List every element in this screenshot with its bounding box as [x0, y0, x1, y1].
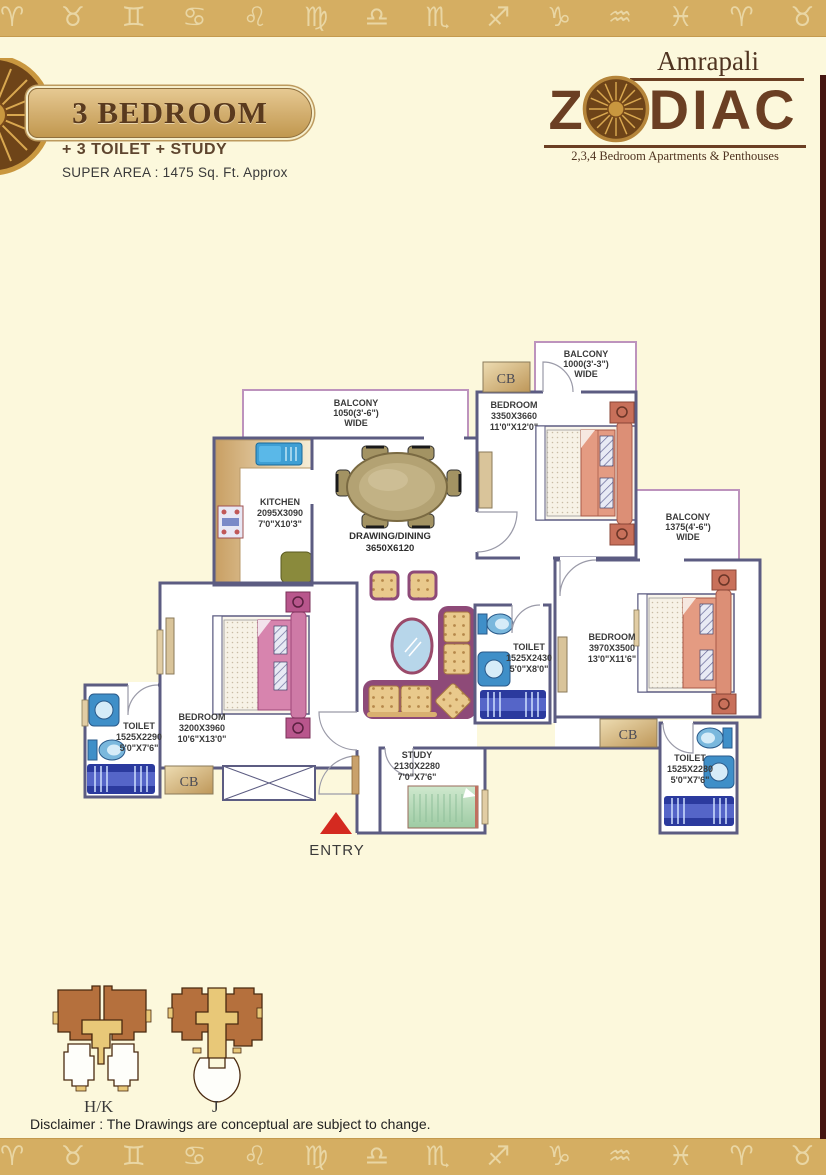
label-kitchen: KITCHEN: [260, 497, 300, 507]
logo-letters-diac: DIAC: [649, 77, 798, 142]
tv-unit: [479, 452, 492, 508]
zodiac-logo: Z DIAC: [540, 72, 806, 146]
svg-text:1525X2430: 1525X2430: [506, 653, 552, 663]
svg-text:10'6"X13'0": 10'6"X13'0": [178, 734, 227, 744]
svg-text:1525X2290: 1525X2290: [116, 732, 162, 742]
zodiac-band-top: ♈ ♉ ♊ ♋ ♌ ♍ ♎ ♏ ♐ ♑ ♒ ♓ ♈ ♉ ♊ ♋ ♌ ♍ ♎ ♏: [0, 0, 826, 37]
label-drawing-dining: DRAWING/DINING: [349, 531, 431, 542]
key-plan: H/K J: [40, 972, 320, 1122]
label-cb-top: CB: [497, 372, 516, 387]
svg-text:7'0"X7'6": 7'0"X7'6": [398, 772, 437, 782]
svg-text:13'0"X11'6": 13'0"X11'6": [588, 654, 636, 664]
brochure-page: ♈ ♉ ♊ ♋ ♌ ♍ ♎ ♏ ♐ ♑ ♒ ♓ ♈ ♉ ♊ ♋ ♌ ♍ ♎ ♏ …: [0, 0, 826, 1175]
unit-title-badge: 3 BEDROOM: [28, 88, 312, 138]
entry-door: [352, 756, 359, 794]
svg-text:1375(4'-6"): 1375(4'-6"): [665, 522, 710, 532]
disclaimer: Disclaimer : The Drawings are conceptual…: [30, 1116, 431, 1132]
tower-hk-icon: [53, 986, 151, 1091]
svg-text:1000(3'-3"): 1000(3'-3"): [563, 359, 608, 369]
svg-text:11'0"X12'0": 11'0"X12'0": [490, 422, 538, 432]
label-bedroom-tr: BEDROOM: [491, 400, 538, 410]
dresser-left: [166, 618, 174, 674]
svg-text:5'0"X8'0": 5'0"X8'0": [510, 664, 549, 674]
svg-text:7'0"X10'3": 7'0"X10'3": [258, 519, 302, 529]
dresser-right: [558, 637, 567, 692]
logo-letter-z: Z: [548, 77, 582, 142]
label-balcony-tr: BALCONY: [564, 349, 609, 359]
label-study: STUDY: [402, 750, 433, 760]
unit-title: 3 BEDROOM: [29, 89, 311, 136]
label-toilet-c: TOILET: [513, 642, 545, 652]
svg-text:5'0"X7'6": 5'0"X7'6": [120, 743, 159, 753]
brand-tagline: 2,3,4 Bedroom Apartments & Penthouses: [540, 149, 810, 164]
svg-text:5'0"X7'6": 5'0"X7'6": [671, 775, 710, 785]
floor-plan: BALCONY 1050(3'-6") WIDE KITCHEN 2095X30…: [40, 335, 770, 870]
svg-text:WIDE: WIDE: [676, 532, 700, 542]
label-toilet-br: TOILET: [674, 753, 706, 763]
tower-j-label: J: [212, 1097, 219, 1116]
study-desk: [408, 786, 478, 828]
svg-text:1050(3'-6"): 1050(3'-6"): [333, 408, 378, 418]
unit-subtitle: + 3 TOILET + STUDY: [62, 141, 227, 159]
svg-text:1525X2280: 1525X2280: [667, 764, 713, 774]
zodiac-symbols-top: ♈ ♉ ♊ ♋ ♌ ♍ ♎ ♏ ♐ ♑ ♒ ♓ ♈ ♉ ♊ ♋ ♌ ♍ ♎ ♏: [0, 2, 826, 33]
label-entry: ENTRY: [309, 842, 365, 859]
svg-text:3200X3960: 3200X3960: [179, 723, 225, 733]
label-balcony-tl: BALCONY: [334, 398, 379, 408]
svg-text:3970X3500: 3970X3500: [589, 643, 635, 653]
tower-j-icon: [168, 988, 262, 1102]
tower-hk-label: H/K: [84, 1097, 114, 1116]
super-area: SUPER AREA : 1475 Sq. Ft. Approx: [62, 165, 288, 180]
label-balcony-r: BALCONY: [666, 512, 711, 522]
svg-text:2095X3090: 2095X3090: [257, 508, 303, 518]
kitchen-fridge: [281, 552, 312, 583]
label-toilet-l: TOILET: [123, 721, 155, 731]
svg-text:WIDE: WIDE: [574, 369, 598, 379]
svg-text:3650X6120: 3650X6120: [366, 543, 415, 554]
svg-text:3350X3660: 3350X3660: [491, 411, 537, 421]
right-edge-strip: [820, 75, 826, 1139]
svg-text:WIDE: WIDE: [344, 418, 368, 428]
label-cb-left: CB: [180, 775, 199, 790]
label-cb-right: CB: [619, 728, 638, 743]
entry-arrow-icon: [320, 812, 352, 834]
label-bedroom-l: BEDROOM: [179, 712, 226, 722]
label-bedroom-r: BEDROOM: [589, 632, 636, 642]
zodiac-symbols-bottom: ♈ ♉ ♊ ♋ ♌ ♍ ♎ ♏ ♐ ♑ ♒ ♓ ♈ ♉ ♊ ♋ ♌ ♍ ♎ ♏: [0, 1141, 826, 1172]
zodiac-band-bottom: ♈ ♉ ♊ ♋ ♌ ♍ ♎ ♏ ♐ ♑ ♒ ♓ ♈ ♉ ♊ ♋ ♌ ♍ ♎ ♏: [0, 1138, 826, 1175]
zodiac-logo-medallion-icon: [580, 73, 652, 145]
logo-rule-bottom: [544, 145, 806, 148]
svg-text:2130X2280: 2130X2280: [394, 761, 440, 771]
center-table: [392, 619, 432, 673]
